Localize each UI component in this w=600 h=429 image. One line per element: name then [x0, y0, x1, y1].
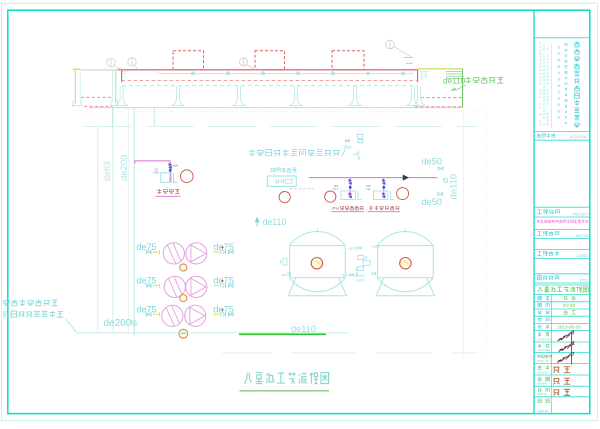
svg-text:PROJECT: PROJECT [573, 213, 589, 217]
svg-text:(de63): (de63) [355, 274, 365, 278]
svg-text:de63: de63 [357, 279, 365, 283]
svg-text:de110: de110 [449, 174, 460, 200]
svg-text:de20: de20 [172, 164, 178, 168]
svg-text:REMARK: REMARK [537, 409, 548, 413]
svg-text:de200: de200 [104, 318, 132, 329]
svg-text:de63: de63 [372, 245, 380, 249]
svg-text:de63: de63 [342, 273, 350, 277]
svg-text:CLIENT: CLIENT [576, 254, 588, 258]
svg-text:NET NO: NET NO [576, 234, 589, 238]
svg-text:TITLE: TITLE [579, 278, 589, 282]
svg-text:5.1.1: 5.1.1 [333, 188, 339, 191]
svg-text:PROOF: PROOF [537, 392, 547, 396]
svg-text:de110: de110 [291, 324, 316, 334]
svg-text:de63: de63 [102, 161, 112, 181]
svg-text:25X: 25X [344, 145, 352, 150]
svg-text:1.11: 1.11 [366, 188, 371, 191]
svg-text:DESIGN: DESIGN [537, 370, 547, 374]
svg-text:de63: de63 [349, 246, 357, 250]
svg-text:PH: PH [332, 206, 339, 212]
svg-text:de110: de110 [263, 217, 287, 227]
svg-text:PROJ. IN.: PROJ. IN. [537, 359, 549, 363]
svg-text:de63: de63 [281, 273, 289, 277]
svg-text:2013-09-30: 2013-09-30 [557, 325, 581, 330]
svg-text:de50: de50 [422, 157, 442, 167]
svg-text:Fl24: Fl24 [154, 170, 160, 174]
svg-text:APPROVED: APPROVED [537, 337, 552, 341]
svg-text:de110: de110 [443, 77, 466, 86]
svg-text:DRAWN: DRAWN [537, 382, 547, 386]
svg-text:ZY-02: ZY-02 [563, 303, 576, 308]
svg-text:de50: de50 [422, 197, 442, 207]
svg-text:de200: de200 [119, 155, 130, 181]
svg-text:165: 165 [353, 153, 359, 157]
svg-text:%: % [131, 319, 138, 328]
svg-text:ACT-FLOW: ACT-FLOW [570, 135, 586, 139]
svg-text:CHECKED: CHECKED [537, 348, 550, 352]
